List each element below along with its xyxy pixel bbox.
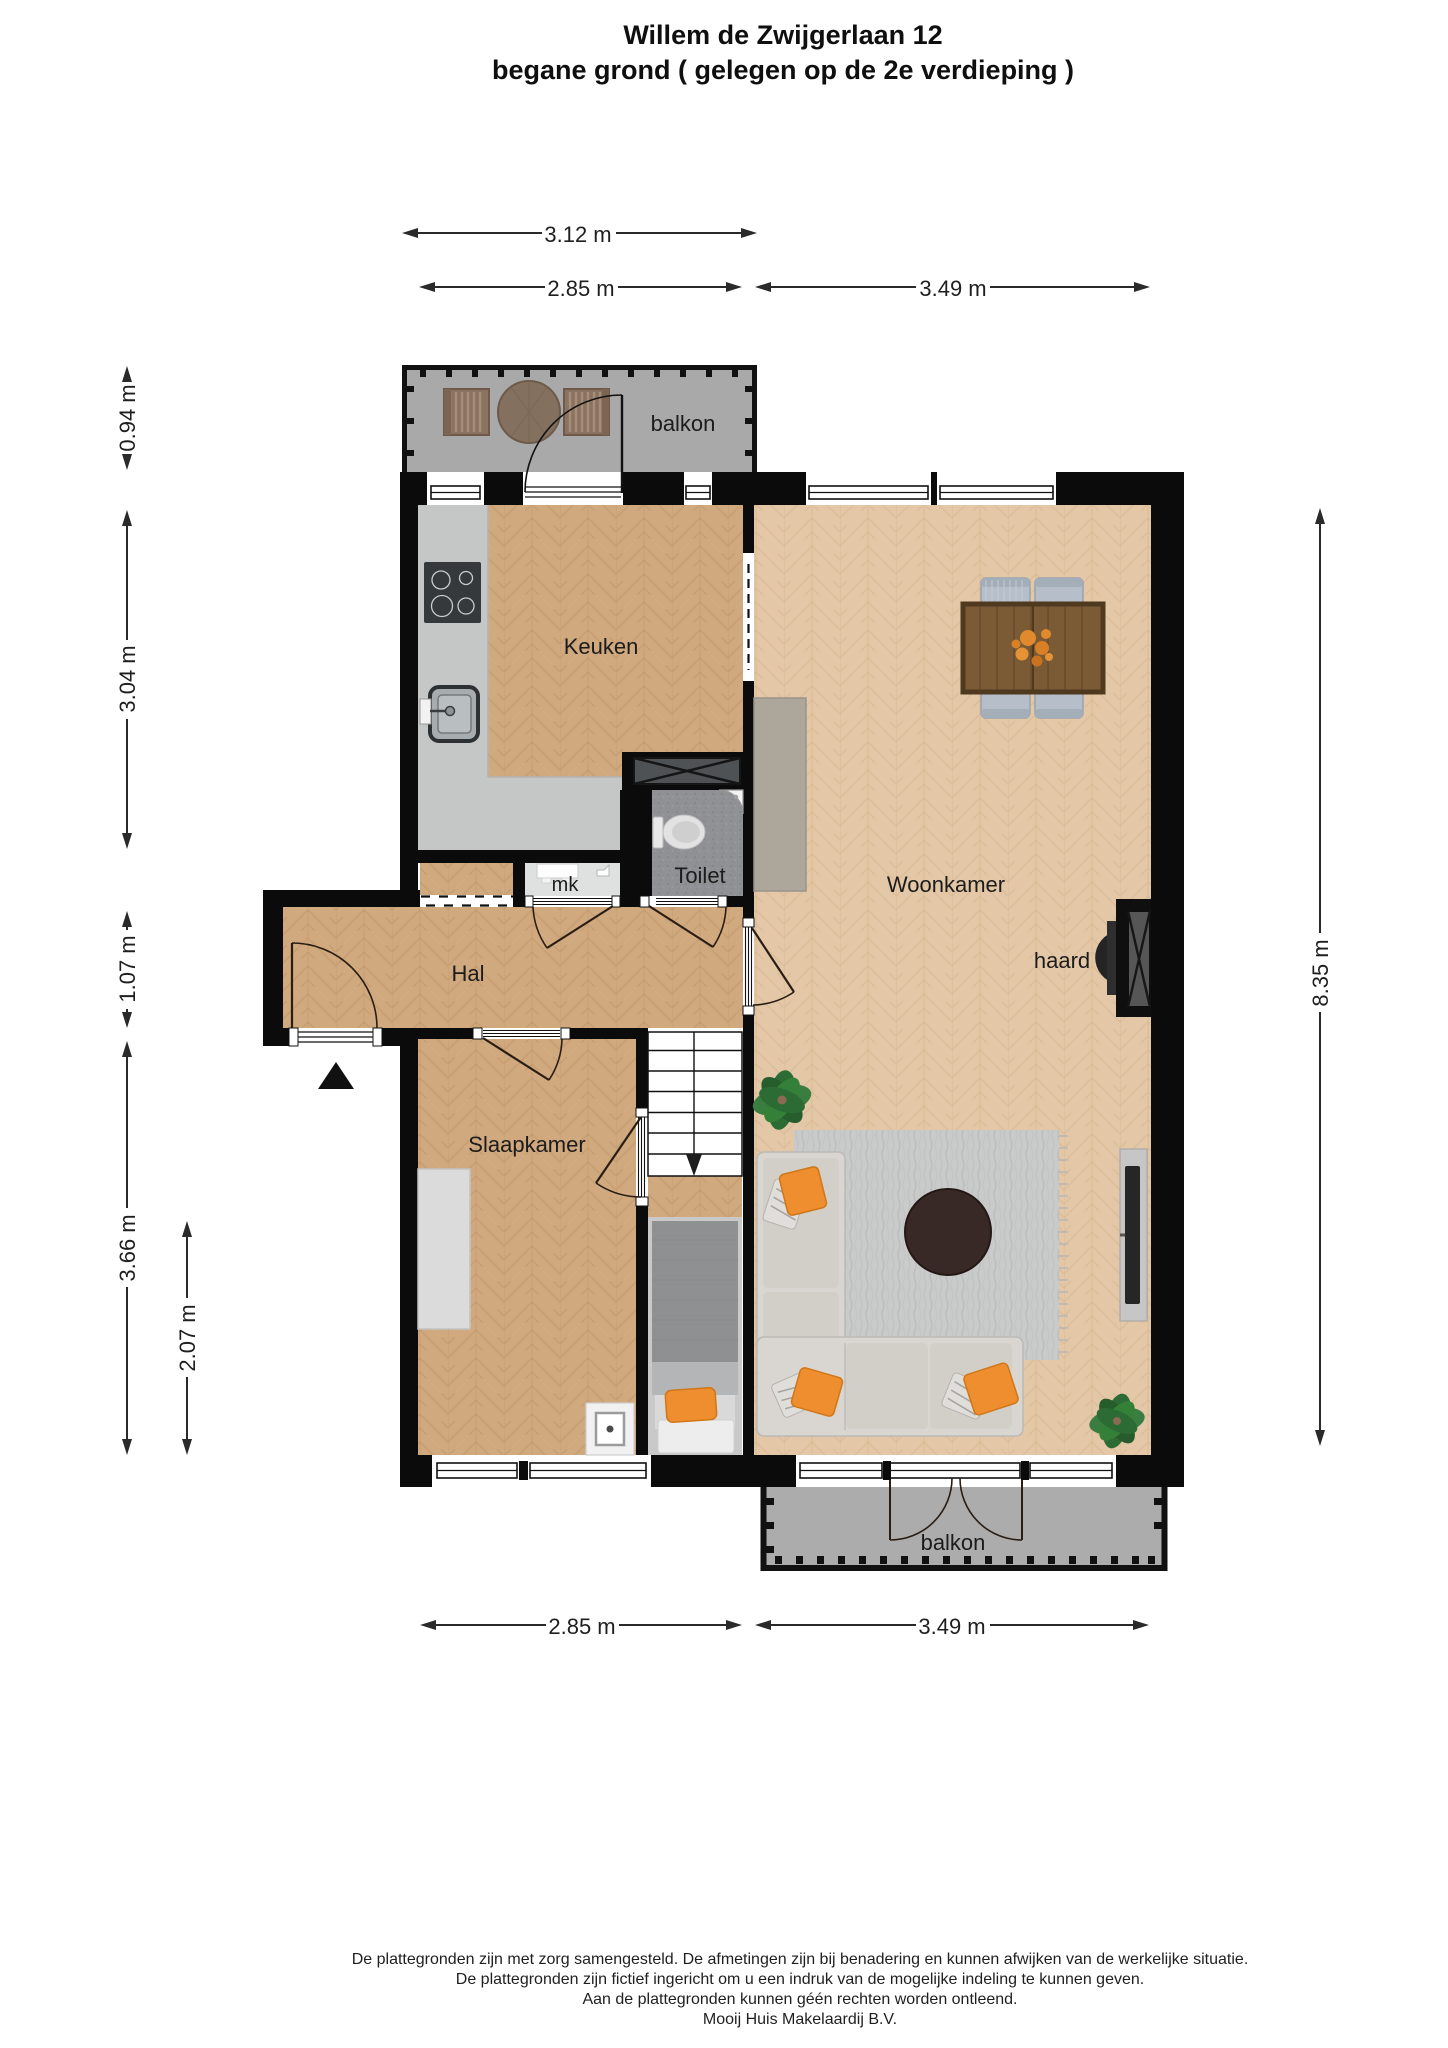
svg-text:3.66 m: 3.66 m (115, 1214, 140, 1281)
svg-text:3.49 m: 3.49 m (918, 1614, 985, 1639)
svg-text:mk: mk (552, 874, 580, 896)
svg-text:begane grond ( gelegen op de 2: begane grond ( gelegen op de 2e verdiepi… (492, 55, 1074, 85)
svg-text:3.12 m: 3.12 m (544, 222, 611, 247)
svg-text:Toilet: Toilet (674, 863, 725, 888)
svg-text:0.94 m: 0.94 m (115, 384, 140, 451)
svg-text:balkon: balkon (921, 1530, 986, 1555)
svg-text:Woonkamer: Woonkamer (887, 872, 1005, 897)
svg-text:Keuken: Keuken (564, 634, 639, 659)
svg-text:Hal: Hal (451, 961, 484, 986)
svg-text:8.35 m: 8.35 m (1308, 939, 1333, 1006)
svg-text:2.85 m: 2.85 m (547, 276, 614, 301)
svg-text:3.49 m: 3.49 m (919, 276, 986, 301)
svg-text:De plattegronden zijn met zorg: De plattegronden zijn met zorg samengest… (352, 1951, 1249, 1968)
svg-text:De plattegronden zijn fictief: De plattegronden zijn fictief ingericht … (456, 1971, 1144, 1988)
svg-text:2.07 m: 2.07 m (175, 1304, 200, 1371)
svg-text:2.85 m: 2.85 m (548, 1614, 615, 1639)
svg-text:balkon: balkon (651, 411, 716, 436)
svg-text:1.07 m: 1.07 m (115, 935, 140, 1002)
svg-text:Mooij Huis Makelaardij B.V.: Mooij Huis Makelaardij B.V. (703, 2011, 897, 2028)
svg-text:3.04 m: 3.04 m (115, 645, 140, 712)
svg-text:haard: haard (1034, 948, 1090, 973)
svg-text:Slaapkamer: Slaapkamer (468, 1132, 585, 1157)
svg-text:Willem de Zwijgerlaan 12: Willem de Zwijgerlaan 12 (623, 20, 942, 50)
svg-text:Aan de plattegronden kunnen gé: Aan de plattegronden kunnen géén rechten… (582, 1991, 1017, 2008)
